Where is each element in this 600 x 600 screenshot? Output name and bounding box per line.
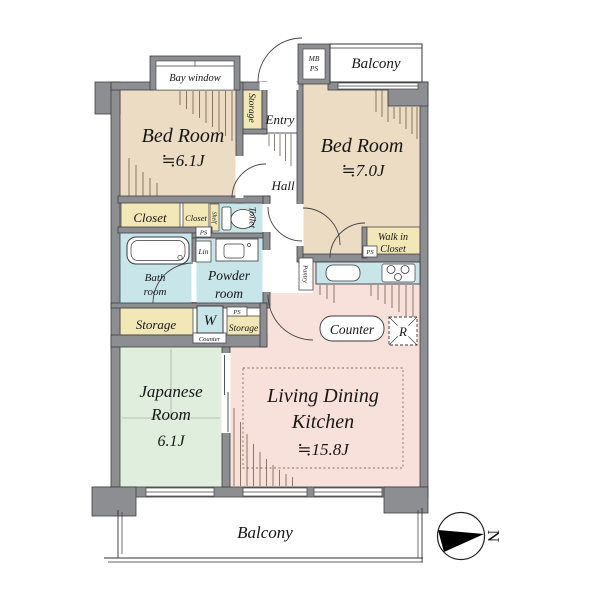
bathtub (127, 237, 189, 264)
ps-label-meter: PS (309, 64, 319, 73)
north-label: N (484, 530, 503, 542)
japanese-room-label-2: Room (150, 405, 191, 424)
compass: N (438, 513, 504, 560)
bedroom-2-label: Bed Room (321, 135, 404, 157)
toilet-label: Toilet (247, 207, 257, 229)
hall-label: Hall (270, 178, 295, 193)
ps-label-2: PS (232, 309, 241, 316)
floor-plan-page: N Bay window Balcony MB PS Entry Storage… (0, 0, 600, 600)
ps-label-1: PS (199, 230, 208, 237)
walk-in-closet-label-2: Closet (380, 244, 406, 255)
balcony-bottom-label: Balcony (237, 523, 293, 542)
powder-sink (216, 239, 258, 261)
counter-kitchen-label: Counter (330, 322, 375, 337)
bedroom-1-area: ≒6.1J (161, 151, 205, 170)
bedroom-2-area: ≒7.0J (341, 161, 385, 180)
lin-label: Lin (197, 247, 208, 256)
storage-mid-label: Storage (229, 324, 259, 334)
mb-label: MB (308, 54, 320, 63)
ldk-label-1: Living Dining (266, 385, 379, 407)
kitchen-counter (316, 262, 420, 284)
shelf-label: Shelf (210, 212, 217, 225)
ldk-label-2: Kitchen (291, 411, 354, 433)
floor-plan: N Bay window Balcony MB PS Entry Storage… (0, 0, 600, 600)
entry-label: Entry (265, 112, 295, 127)
bedroom-1-label: Bed Room (142, 125, 225, 147)
bath-label-2: room (144, 286, 167, 298)
washer-label: W (204, 313, 218, 329)
hall-storage-label: Storage (246, 93, 256, 123)
kitchen-sink (326, 265, 360, 281)
balcony-top-label: Balcony (351, 56, 400, 72)
powder-label-1: Powder (207, 268, 251, 283)
powder-label-2: room (215, 286, 243, 301)
counter-small-label: Counter (199, 336, 221, 343)
japanese-room-label-1: Japanese (139, 382, 203, 401)
ldk-area: ≒15.8J (297, 440, 350, 459)
pantry-label: Pantry (302, 264, 309, 283)
storage-left-label: Storage (136, 317, 177, 332)
bath-label-1: Bath (145, 272, 166, 284)
japanese-room-area: 6.1J (157, 433, 185, 450)
refrigerator-label: R (398, 324, 407, 339)
bay-window-label: Bay window (169, 73, 221, 84)
ps-label-3: PS (365, 249, 374, 256)
closet-small-label: Closet (185, 213, 207, 223)
closet-large-label: Closet (133, 210, 167, 225)
walk-in-closet-label-1: Walk in (378, 232, 408, 243)
